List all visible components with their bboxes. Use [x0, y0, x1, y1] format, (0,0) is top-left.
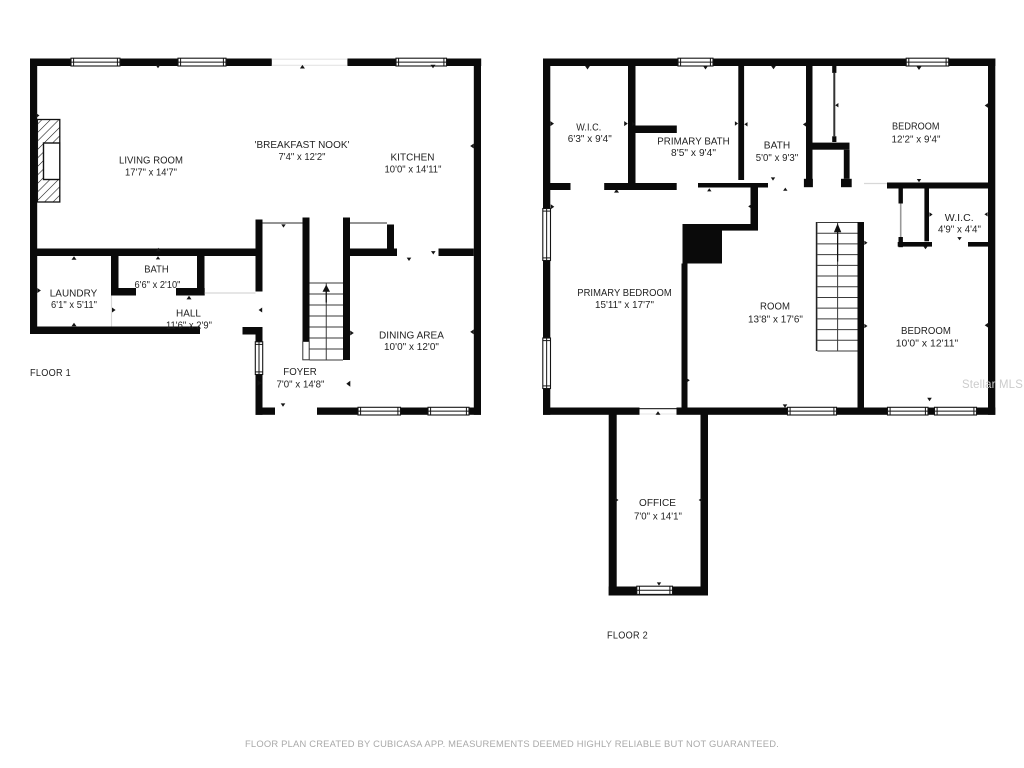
svg-text:6'1" x 5'11": 6'1" x 5'11" [51, 300, 97, 311]
svg-text:12'2" x 9'4": 12'2" x 9'4" [892, 135, 941, 146]
svg-text:10'0" x 12'11": 10'0" x 12'11" [896, 339, 959, 350]
svg-text:W.I.C.: W.I.C. [576, 123, 601, 134]
svg-text:BATH: BATH [764, 141, 791, 152]
svg-text:FLOOR PLAN CREATED BY CUBICASA: FLOOR PLAN CREATED BY CUBICASA APP. MEAS… [245, 739, 779, 750]
svg-text:10'0" x 14'11": 10'0" x 14'11" [385, 165, 442, 176]
svg-text:FOYER: FOYER [283, 367, 317, 378]
svg-text:17'7" x 14'7": 17'7" x 14'7" [125, 168, 177, 179]
svg-text:6'3" x 9'4": 6'3" x 9'4" [568, 134, 612, 145]
svg-text:DINING AREA: DINING AREA [379, 331, 444, 342]
svg-text:6'6" x 2'10": 6'6" x 2'10" [135, 280, 181, 291]
svg-text:5'0" x 9'3": 5'0" x 9'3" [756, 153, 799, 164]
svg-text:HALL: HALL [176, 309, 201, 320]
svg-text:KITCHEN: KITCHEN [391, 153, 435, 164]
svg-text:10'0" x 12'0": 10'0" x 12'0" [384, 342, 439, 353]
svg-text:PRIMARY BEDROOM: PRIMARY BEDROOM [577, 288, 672, 299]
svg-text:BATH: BATH [144, 265, 169, 276]
svg-text:FLOOR 2: FLOOR 2 [607, 631, 648, 642]
svg-text:7'0" x 14'1": 7'0" x 14'1" [634, 512, 682, 523]
svg-text:BEDROOM: BEDROOM [901, 326, 951, 337]
svg-text:Stellar MLS: Stellar MLS [962, 377, 1023, 391]
svg-text:8'5" x 9'4": 8'5" x 9'4" [671, 148, 716, 159]
svg-text:FLOOR 1: FLOOR 1 [30, 368, 71, 379]
svg-text:PRIMARY BATH: PRIMARY BATH [657, 137, 730, 148]
svg-text:LIVING ROOM: LIVING ROOM [119, 156, 183, 167]
svg-text:ROOM: ROOM [760, 302, 790, 313]
svg-text:7'4" x 12'2": 7'4" x 12'2" [279, 152, 326, 163]
svg-text:LAUNDRY: LAUNDRY [50, 289, 98, 300]
svg-text:W.I.C.: W.I.C. [945, 213, 974, 224]
svg-text:'BREAKFAST NOOK': 'BREAKFAST NOOK' [255, 140, 350, 151]
svg-text:OFFICE: OFFICE [639, 498, 676, 509]
svg-text:13'8" x 17'6": 13'8" x 17'6" [748, 315, 803, 326]
svg-text:BEDROOM: BEDROOM [892, 122, 940, 133]
svg-text:11'6" x 2'9": 11'6" x 2'9" [166, 321, 212, 332]
svg-text:4'9" x 4'4": 4'9" x 4'4" [938, 225, 981, 236]
svg-text:7'0" x 14'8": 7'0" x 14'8" [277, 380, 325, 391]
svg-text:15'11" x 17'7": 15'11" x 17'7" [595, 300, 654, 311]
